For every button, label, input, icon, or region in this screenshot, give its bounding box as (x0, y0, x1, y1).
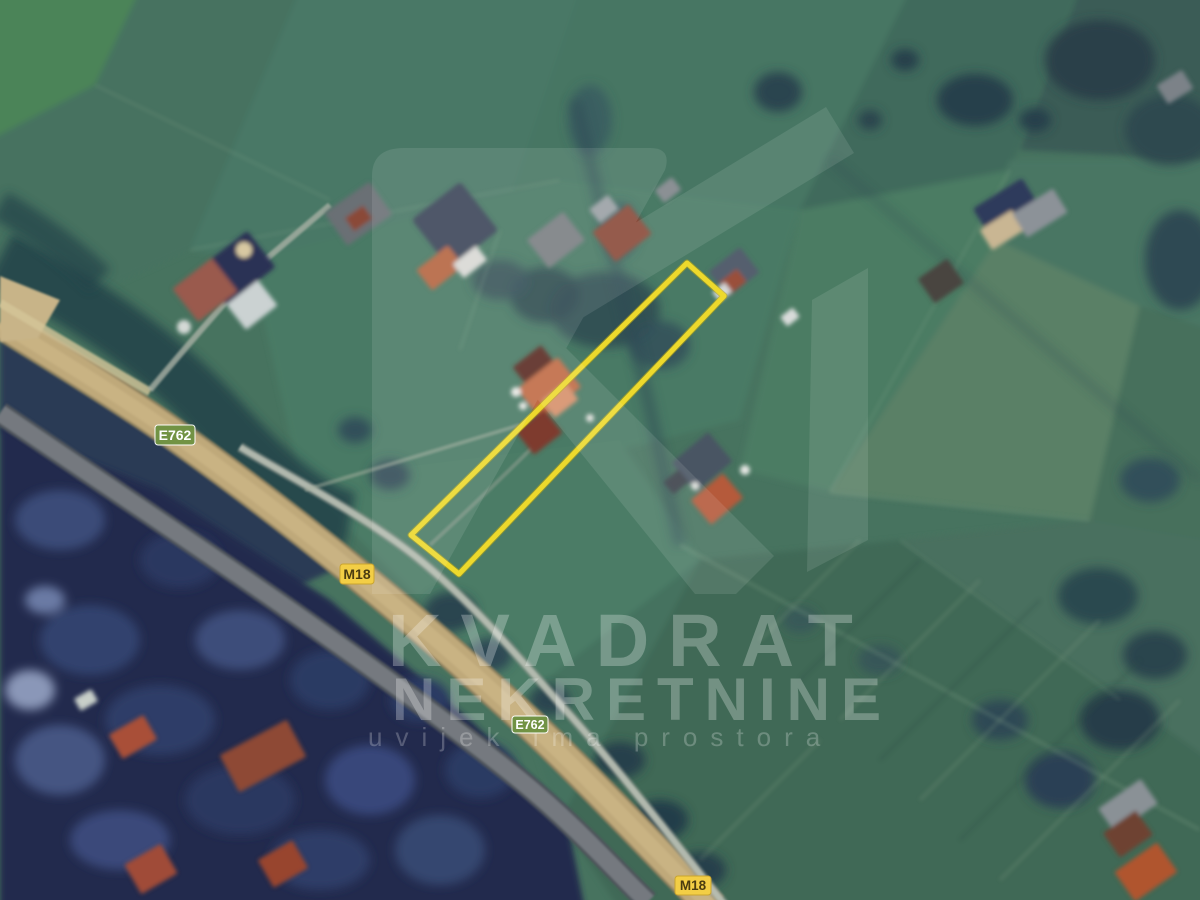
svg-text:uvijek ima prostora: uvijek ima prostora (368, 722, 833, 752)
svg-text:M18: M18 (343, 566, 370, 582)
svg-text:M18: M18 (680, 878, 707, 893)
svg-text:E762: E762 (515, 718, 544, 732)
svg-text:E762: E762 (159, 427, 192, 443)
